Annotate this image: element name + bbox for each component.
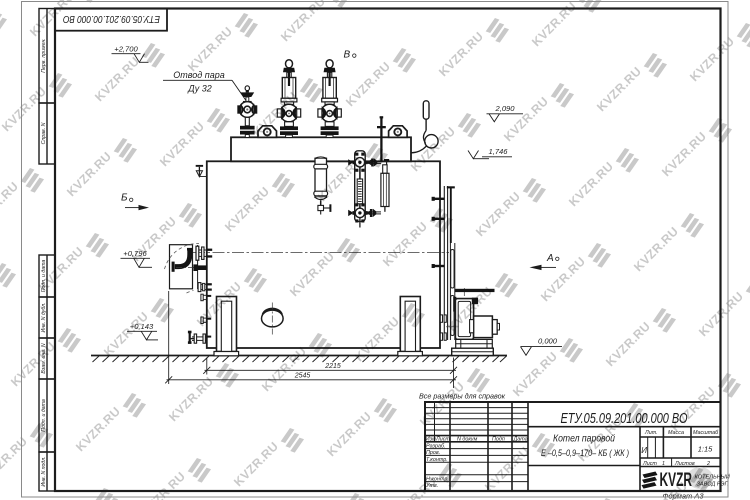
svg-text:Листов: Листов xyxy=(674,461,695,467)
svg-text:И: И xyxy=(641,446,647,455)
svg-text:1: 1 xyxy=(662,461,665,467)
svg-text:1,746: 1,746 xyxy=(488,147,508,156)
svg-text:Разраб.: Разраб. xyxy=(426,443,446,449)
svg-text:А: А xyxy=(546,253,554,264)
svg-text:Лист: Лист xyxy=(435,436,450,442)
svg-text:+2,700: +2,700 xyxy=(114,45,138,54)
svg-text:Лит.: Лит. xyxy=(644,430,658,436)
svg-text:Масштаб: Масштаб xyxy=(693,430,719,436)
svg-text:Подп: Подп xyxy=(492,436,505,442)
svg-text:2,090: 2,090 xyxy=(494,104,515,113)
svg-text:Дата: Дата xyxy=(513,436,528,442)
svg-text:Т.контр.: Т.контр. xyxy=(426,457,448,463)
svg-text:2545: 2545 xyxy=(294,373,311,380)
svg-text:Перв. примен.: Перв. примен. xyxy=(41,38,47,72)
svg-text:ЕТУ.05.09.201.00.000 ВО: ЕТУ.05.09.201.00.000 ВО xyxy=(63,13,160,24)
svg-text:Б: Б xyxy=(121,193,128,204)
svg-text:N докум: N докум xyxy=(457,436,478,442)
svg-text:Инв. N подл.: Инв. N подл. xyxy=(41,456,47,486)
svg-text:0,000: 0,000 xyxy=(538,337,558,346)
svg-text:Отвод пара: Отвод пара xyxy=(173,70,224,80)
svg-text:1:15: 1:15 xyxy=(698,445,713,454)
svg-text:В: В xyxy=(344,50,351,61)
svg-text:2: 2 xyxy=(706,461,710,467)
svg-text:Ду 32: Ду 32 xyxy=(187,84,211,94)
svg-text:Изм: Изм xyxy=(426,436,436,442)
svg-text:Пров.: Пров. xyxy=(426,450,440,456)
svg-text:2215: 2215 xyxy=(324,363,341,370)
svg-text:Инв. N дубл.: Инв. N дубл. xyxy=(41,302,47,332)
svg-text:Справ. N: Справ. N xyxy=(41,122,47,144)
svg-text:Лист: Лист xyxy=(642,461,657,467)
